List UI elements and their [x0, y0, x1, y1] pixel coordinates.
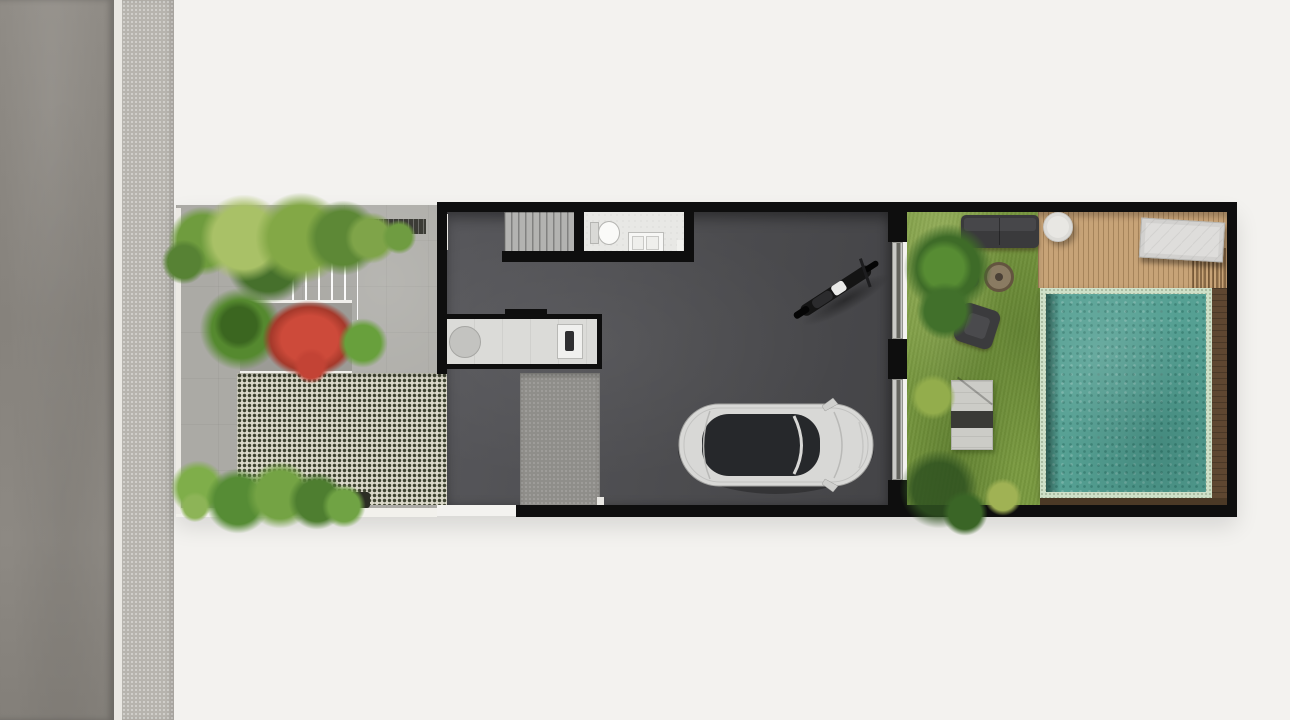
round-side-table — [1043, 212, 1073, 242]
shrub — [382, 220, 416, 254]
fire-pit-center — [995, 273, 1003, 281]
staircase — [504, 212, 576, 253]
bench-dark-band — [951, 411, 993, 428]
planter-plant — [214, 300, 264, 350]
shrub — [338, 318, 388, 368]
garden-plant — [322, 484, 366, 528]
street-asphalt — [0, 0, 114, 720]
wall-bath-partition — [684, 210, 694, 255]
vanity-basin — [632, 236, 644, 250]
dark-deck-strip — [1212, 288, 1227, 505]
car-icon — [676, 394, 876, 496]
wall-garage-rear — [888, 202, 907, 242]
sidewalk — [122, 0, 174, 720]
lawn-bush — [984, 478, 1022, 516]
floor-plan-scene — [0, 0, 1290, 720]
wall-top — [437, 202, 1237, 212]
pool-water — [1046, 294, 1206, 492]
lawn-tree — [916, 282, 974, 340]
toilet-icon — [598, 221, 620, 245]
carport-concrete-pad — [520, 373, 600, 506]
motorcycle-icon — [770, 238, 910, 338]
sun-lounger — [1139, 217, 1225, 262]
lawn-bush — [910, 374, 956, 420]
wall-right — [1227, 202, 1237, 517]
garden-plant — [180, 492, 210, 522]
sliding-glass-door — [892, 379, 903, 480]
wall-stair-partition — [574, 210, 584, 255]
wall-garage-rear — [888, 339, 907, 379]
wall-left — [437, 202, 447, 374]
street-edge-line — [114, 0, 122, 720]
sofa-cushion-divider — [999, 218, 1000, 245]
lawn-bush — [942, 490, 988, 536]
wall-under-stairs — [502, 251, 694, 262]
round-dining-table — [449, 326, 481, 358]
sink-basin — [565, 331, 574, 351]
kitchen-window-lintel — [505, 309, 547, 316]
dark-deck-strip — [1040, 498, 1227, 505]
shrub — [162, 240, 206, 284]
red-shrub — [293, 348, 329, 384]
wall-bottom — [516, 505, 1237, 517]
vanity-basin — [646, 236, 659, 250]
pool-shadow-edge — [1046, 294, 1060, 492]
sofa-back-cushions — [964, 218, 1036, 231]
swimming-pool — [1040, 288, 1212, 498]
